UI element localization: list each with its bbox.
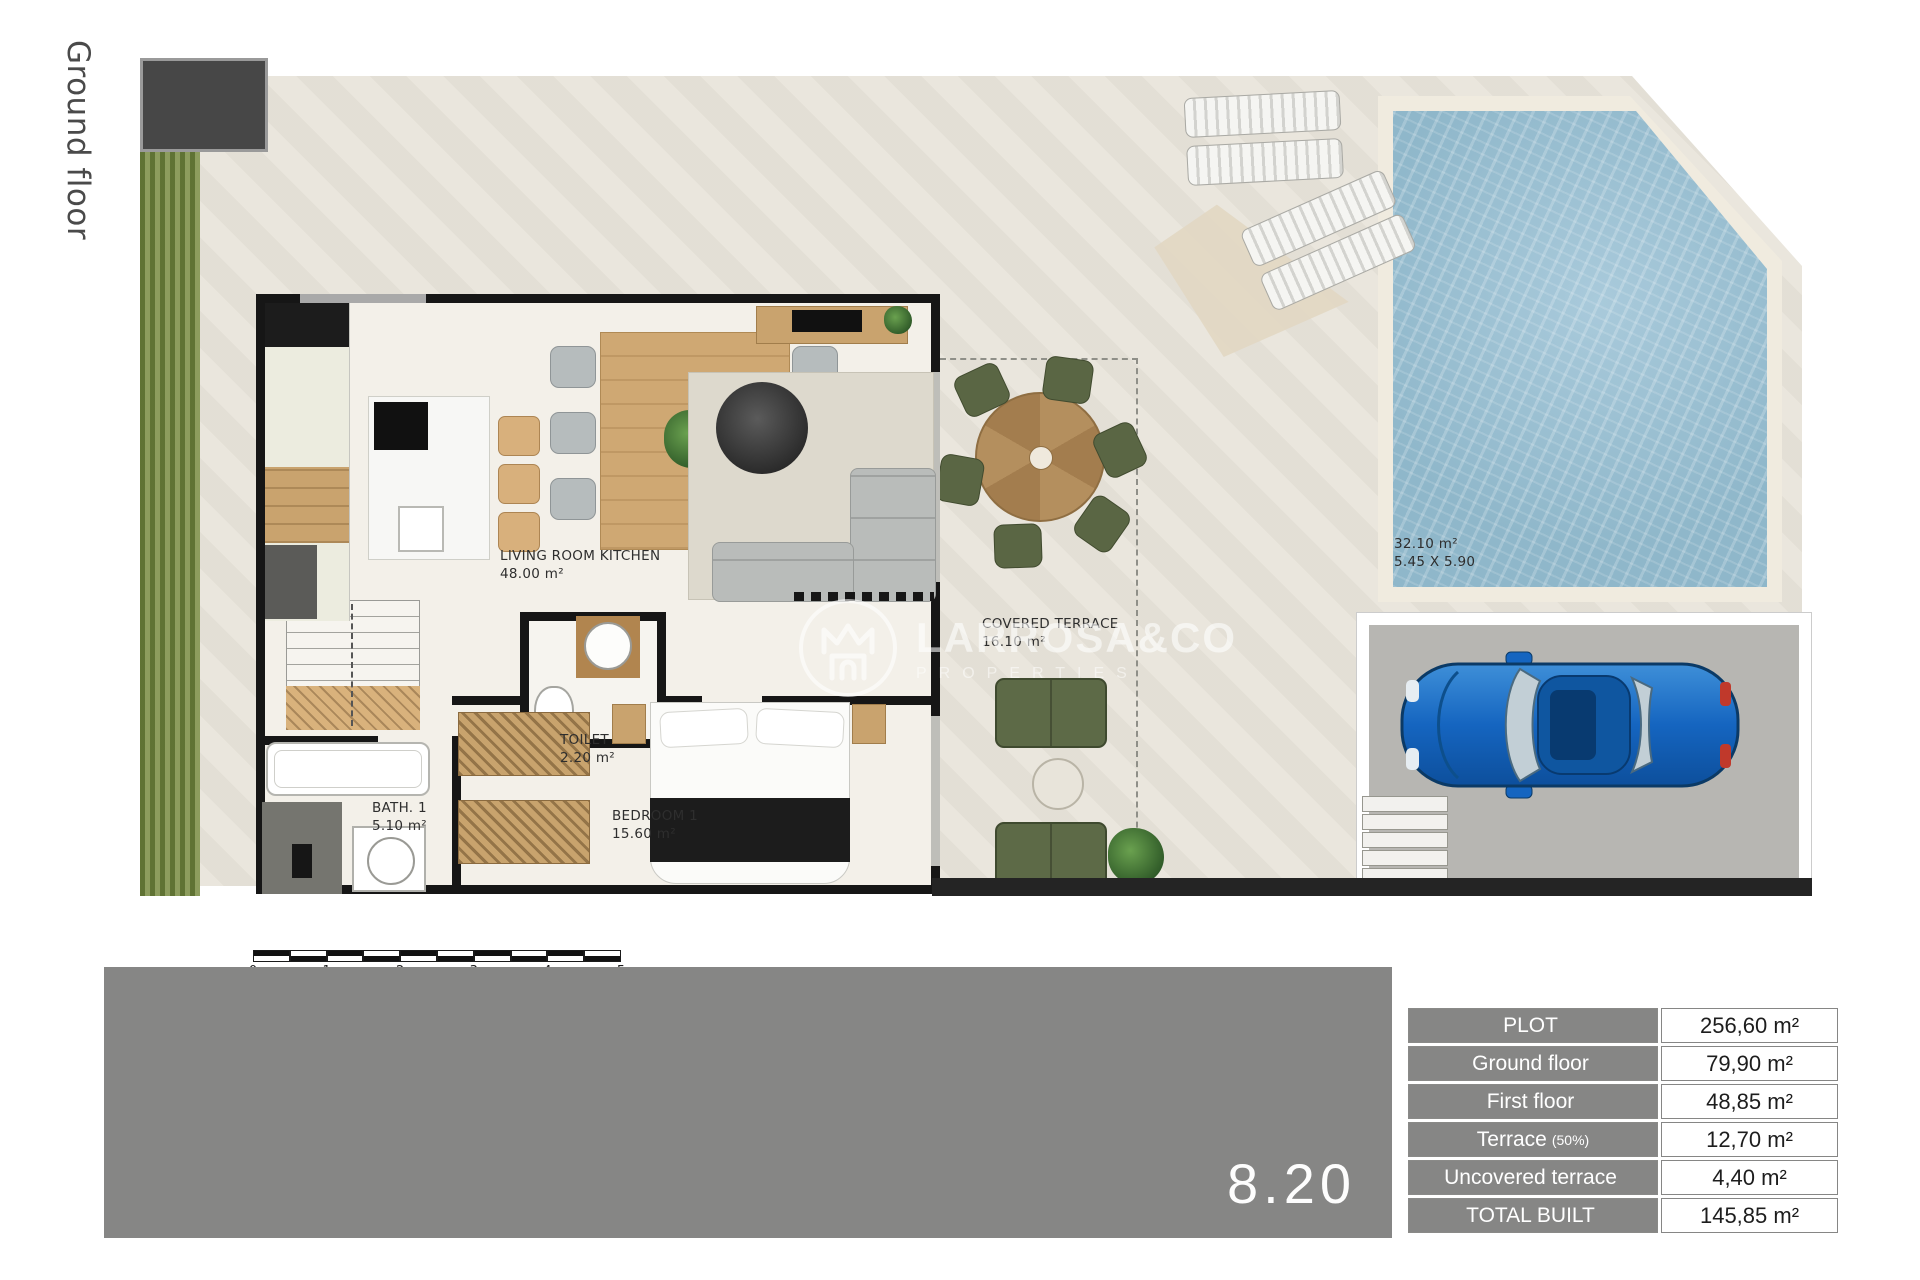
scale-segment: [327, 950, 364, 962]
table-row: PLOT 256,60 m²: [1408, 1008, 1838, 1043]
wardrobe: [458, 800, 590, 864]
row-value: 4,40 m²: [1661, 1160, 1838, 1195]
kitchen-dark-unit: [265, 545, 317, 619]
driveway-steps: [1362, 796, 1448, 888]
sliding-door-threshold: [794, 592, 934, 601]
row-label: TOTAL BUILT: [1408, 1198, 1658, 1233]
room-name: COVERED TERRACE: [982, 616, 1119, 634]
toilet-basin: [584, 622, 632, 670]
row-label: PLOT: [1408, 1008, 1658, 1043]
bathtub-inner: [274, 750, 422, 788]
staircase-lower: [286, 686, 420, 730]
row-value: 256,60 m²: [1661, 1008, 1838, 1043]
table-row: Ground floor 79,90 m²: [1408, 1046, 1838, 1081]
row-label: Uncovered terrace: [1408, 1160, 1658, 1195]
bar-stool: [498, 416, 540, 456]
room-area: 48.00 m²: [500, 566, 660, 584]
toilet-label: TOILET 2.20 m²: [560, 732, 615, 767]
pool-label: 32.10 m² 5.45 X 5.90: [1394, 536, 1475, 571]
row-label: First floor: [1408, 1084, 1658, 1119]
bedroom-label: BEDROOM 1 15.60 m²: [612, 808, 698, 843]
terrace-chair: [993, 523, 1043, 569]
terrace-side-table: [1032, 758, 1084, 810]
covered-terrace-label: COVERED TERRACE 16.10 m²: [982, 616, 1119, 651]
row-value: 79,90 m²: [1661, 1046, 1838, 1081]
pool-area: 32.10 m²: [1394, 536, 1475, 554]
sun-loungers-top: [1184, 90, 1345, 194]
step: [1362, 814, 1448, 830]
room-name: LIVING ROOM KITCHEN: [500, 548, 660, 566]
table-center: [1029, 446, 1053, 470]
utility-block: [140, 58, 268, 152]
kitchen-wood-cabinet: [265, 467, 349, 543]
scale-segment: [437, 950, 474, 962]
terrace-dining-table: [975, 392, 1105, 522]
table-row: First floor 48,85 m²: [1408, 1084, 1838, 1119]
row-label-text: First floor: [1487, 1090, 1575, 1114]
bath-fixture: [292, 844, 312, 878]
row-label-text: Terrace: [1477, 1128, 1547, 1152]
scale-segment: [363, 950, 400, 962]
pool-dimensions: 5.45 X 5.90: [1394, 554, 1475, 572]
scale-segment: [511, 950, 548, 962]
table-row: Uncovered terrace 4,40 m²: [1408, 1160, 1838, 1195]
scale-segment: [474, 950, 511, 962]
floor-title: Ground floor: [60, 40, 96, 240]
room-name: TOILET: [560, 732, 615, 750]
floorplan-page: Ground floor 32.10 m² 5.45 X 5.90: [0, 0, 1920, 1280]
dining-chair: [550, 346, 596, 388]
pillow: [659, 708, 749, 749]
scale-segment: [400, 950, 437, 962]
sofa: [850, 468, 936, 602]
cooktop: [374, 402, 428, 450]
terrace-chair: [934, 453, 986, 508]
row-label-text: PLOT: [1503, 1014, 1558, 1038]
table-row: Terrace(50%) 12,70 m²: [1408, 1122, 1838, 1157]
table-row: TOTAL BUILT 145,85 m²: [1408, 1198, 1838, 1233]
living-room-label: LIVING ROOM KITCHEN 48.00 m²: [500, 548, 660, 583]
bar-stool: [498, 464, 540, 504]
scale-bar-segments: [253, 950, 621, 962]
row-label-suffix: (50%): [1552, 1132, 1589, 1148]
bath-sink: [352, 826, 426, 892]
row-label-text: TOTAL BUILT: [1466, 1204, 1595, 1228]
coffee-table: [716, 382, 808, 474]
room-area: 5.10 m²: [372, 818, 427, 836]
room-name: BEDROOM 1: [612, 808, 698, 826]
row-label: Terrace(50%): [1408, 1122, 1658, 1157]
row-value: 145,85 m²: [1661, 1198, 1838, 1233]
room-area: 2.20 m²: [560, 750, 615, 768]
row-value: 48,85 m²: [1661, 1084, 1838, 1119]
kitchen-sink: [398, 506, 444, 552]
glass-door: [931, 716, 940, 866]
window: [300, 294, 426, 303]
areas-table: PLOT 256,60 m² Ground floor 79,90 m² Fir…: [1408, 1008, 1838, 1236]
plant: [1108, 828, 1164, 884]
grass-strip: [140, 148, 200, 896]
footer-bar: 8.20: [104, 967, 1392, 1238]
terrace-chair: [1041, 355, 1095, 405]
staircase-direction: [351, 604, 353, 726]
row-value: 12,70 m²: [1661, 1122, 1838, 1157]
bath-sink-bowl: [367, 837, 415, 885]
scale-segment: [253, 950, 290, 962]
bathtub: [266, 742, 430, 796]
row-label-text: Uncovered terrace: [1444, 1166, 1617, 1190]
step: [1362, 850, 1448, 866]
bar-stool: [498, 512, 540, 552]
scale-segment: [584, 950, 621, 962]
scale-segment: [547, 950, 584, 962]
car-top-view: [1398, 650, 1742, 800]
nightstand: [852, 704, 886, 744]
room-area: 15.60 m²: [612, 826, 698, 844]
room-name: BATH. 1: [372, 800, 427, 818]
sun-lounger: [1186, 138, 1344, 186]
scale-segment: [290, 950, 327, 962]
plot-bottom-wall: [932, 878, 1812, 896]
room-area: 16.10 m²: [982, 634, 1119, 652]
row-label: Ground floor: [1408, 1046, 1658, 1081]
bath-label: BATH. 1 5.10 m²: [372, 800, 427, 835]
nightstand: [612, 704, 646, 744]
tv: [792, 310, 862, 332]
sun-lounger: [1184, 90, 1342, 138]
step: [1362, 832, 1448, 848]
plant: [884, 306, 912, 334]
kitchen-appliance: [265, 303, 349, 347]
row-label-text: Ground floor: [1472, 1052, 1589, 1076]
plan-number: 8.20: [1227, 1151, 1356, 1216]
dining-chair: [550, 412, 596, 454]
pillow: [755, 708, 845, 749]
terrace-sofa: [995, 678, 1107, 748]
dining-chair: [550, 478, 596, 520]
